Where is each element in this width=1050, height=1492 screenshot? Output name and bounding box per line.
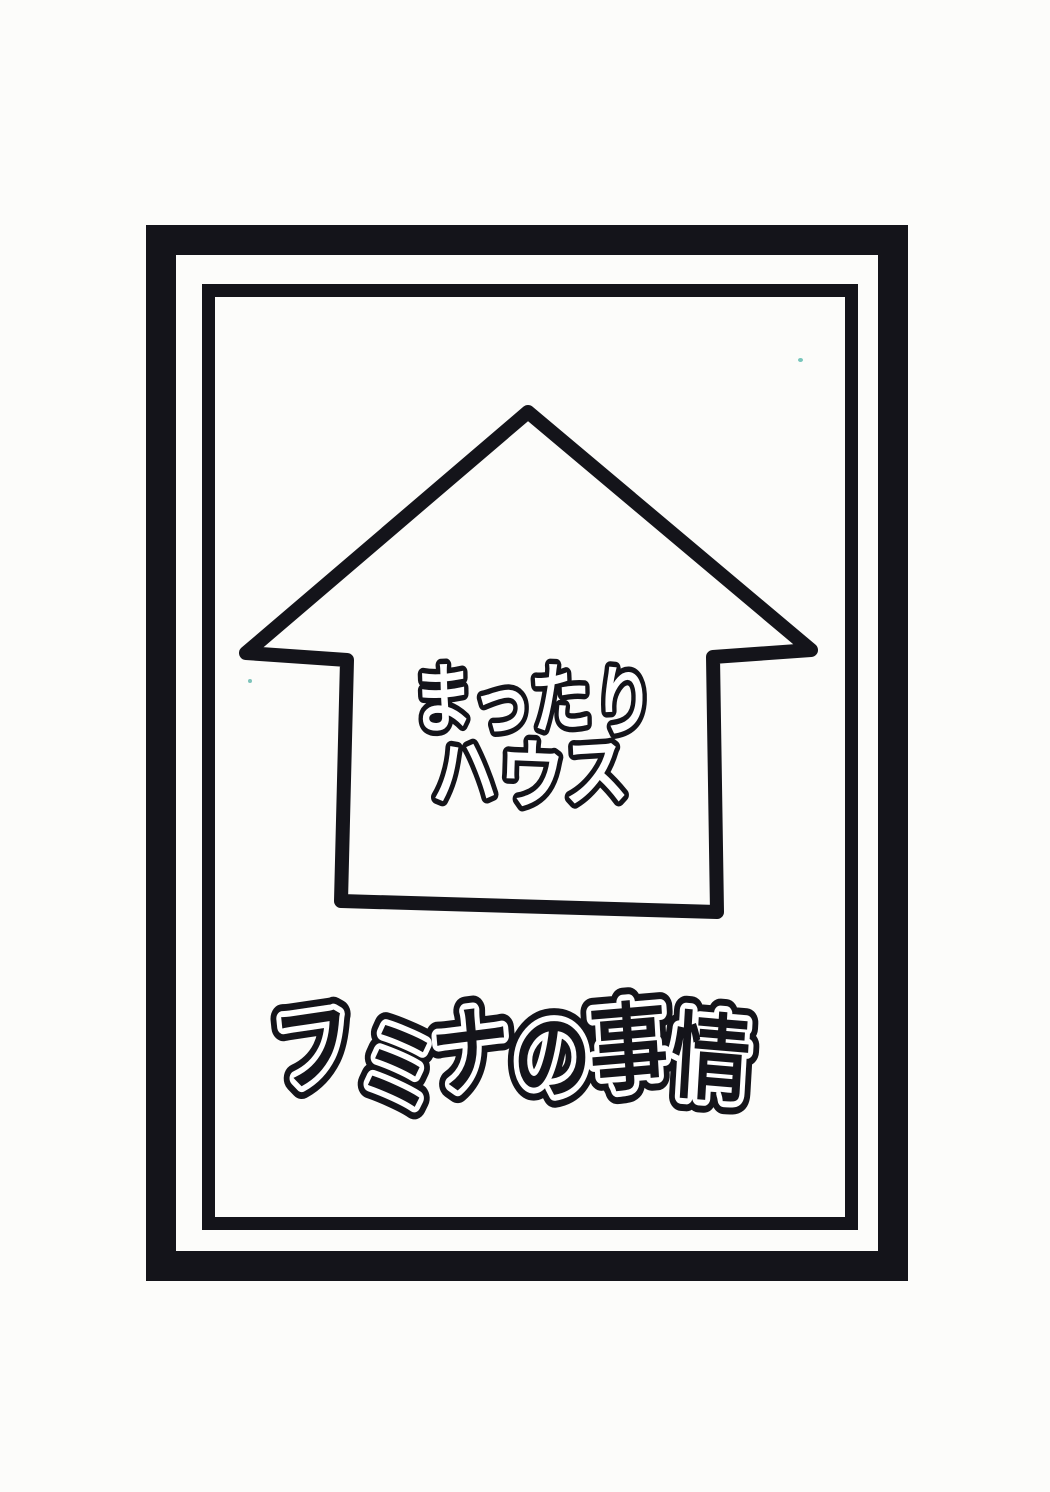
title-text: フミナの事情 (268, 991, 754, 1126)
house-sign-line2: ハウス (428, 727, 631, 822)
house-sign-text: まったり ハウス (411, 653, 657, 821)
title-logo: フミナの事情 フミナの事情 (268, 991, 754, 1126)
cover-artwork: まったり ハウス フミナの事情 フミナの事情 (0, 0, 1050, 1492)
